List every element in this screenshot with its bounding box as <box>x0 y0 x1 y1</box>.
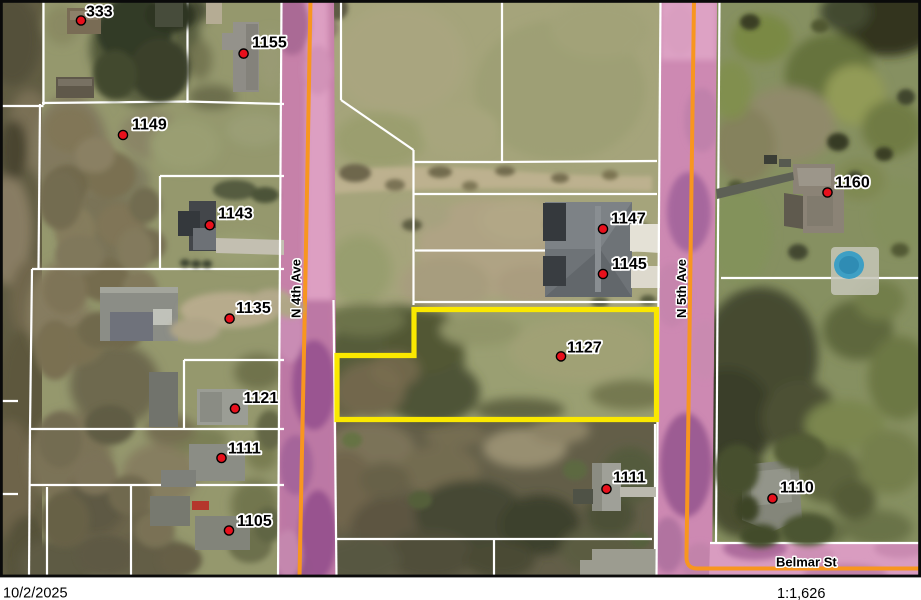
svg-text:1111: 1111 <box>228 441 261 458</box>
svg-text:1105: 1105 <box>237 513 272 530</box>
svg-text:333: 333 <box>86 4 113 21</box>
svg-text:1145: 1145 <box>612 256 647 273</box>
svg-text:1127: 1127 <box>567 340 602 357</box>
svg-text:1135: 1135 <box>236 300 271 317</box>
svg-text:10/2/2025: 10/2/2025 <box>3 586 68 600</box>
svg-text:N 4th Ave: N 4th Ave <box>289 259 304 318</box>
svg-text:1121: 1121 <box>244 390 279 407</box>
svg-text:N 5th Ave: N 5th Ave <box>674 259 689 318</box>
svg-text:1143: 1143 <box>218 206 253 223</box>
svg-text:Belmar St: Belmar St <box>776 555 837 570</box>
svg-text:1111: 1111 <box>613 470 646 487</box>
svg-text:1110: 1110 <box>780 480 814 497</box>
svg-text:1149: 1149 <box>132 117 167 134</box>
svg-text:1160: 1160 <box>835 175 870 192</box>
svg-text:1147: 1147 <box>611 211 646 228</box>
svg-text:1155: 1155 <box>252 35 287 52</box>
svg-text:1:1,626: 1:1,626 <box>777 586 825 600</box>
